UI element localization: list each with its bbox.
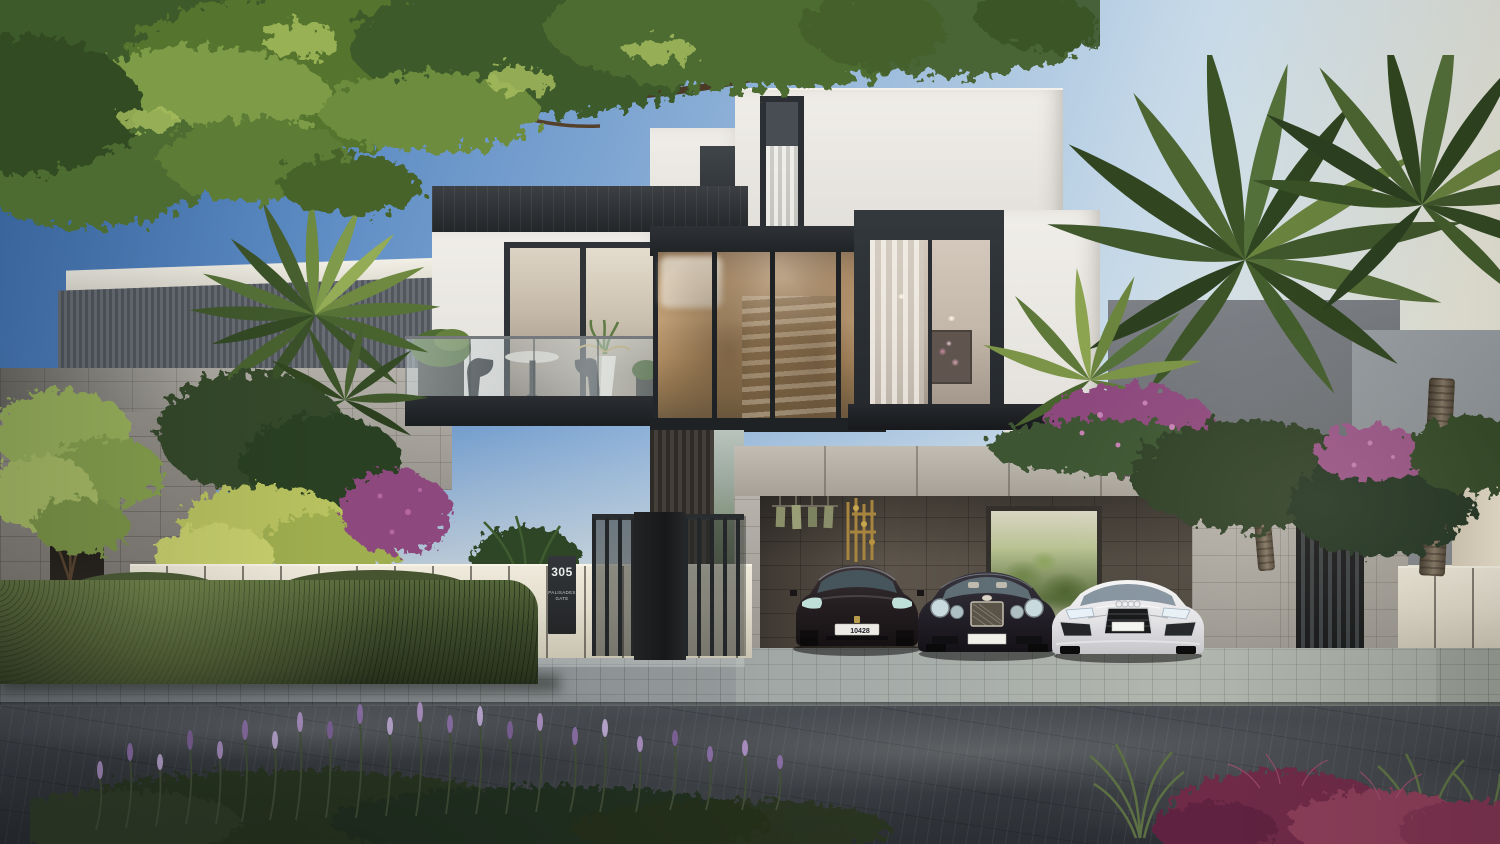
community-name-line2: GATE (548, 596, 576, 601)
overhanging-tree-canopy (0, 0, 1100, 235)
community-name-line1: PALISADES (548, 590, 576, 595)
atrium-mullion-2 (770, 252, 775, 422)
hanging-tag (792, 505, 802, 529)
palm-head-tall (1251, 55, 1500, 316)
hanging-tag (808, 507, 817, 527)
garden-foliage (0, 372, 582, 593)
shrub-blossoms (97, 702, 783, 779)
entry-gate-bars-right (684, 518, 744, 656)
hedge (0, 580, 538, 684)
address-plaque: 305 PALISADES GATE (548, 556, 576, 634)
bedroom-ceiling-light-1 (898, 294, 905, 299)
address-number: 305 (548, 556, 576, 579)
foreground-purple-shrub (30, 700, 930, 844)
warm-sun-glow (900, 330, 1500, 760)
hanging-tag (823, 506, 833, 528)
entry-gate-open-leaf (634, 512, 686, 660)
hanging-tag (776, 507, 786, 527)
atrium-tree-reflections (658, 252, 878, 420)
atrium-mullion-3 (836, 252, 841, 422)
villa-exterior-rendering: 10428 (0, 0, 1500, 844)
atrium-mullion-1 (712, 252, 717, 422)
sedan-plate-text: 10428 (850, 628, 870, 635)
sedan-badge (854, 616, 860, 623)
